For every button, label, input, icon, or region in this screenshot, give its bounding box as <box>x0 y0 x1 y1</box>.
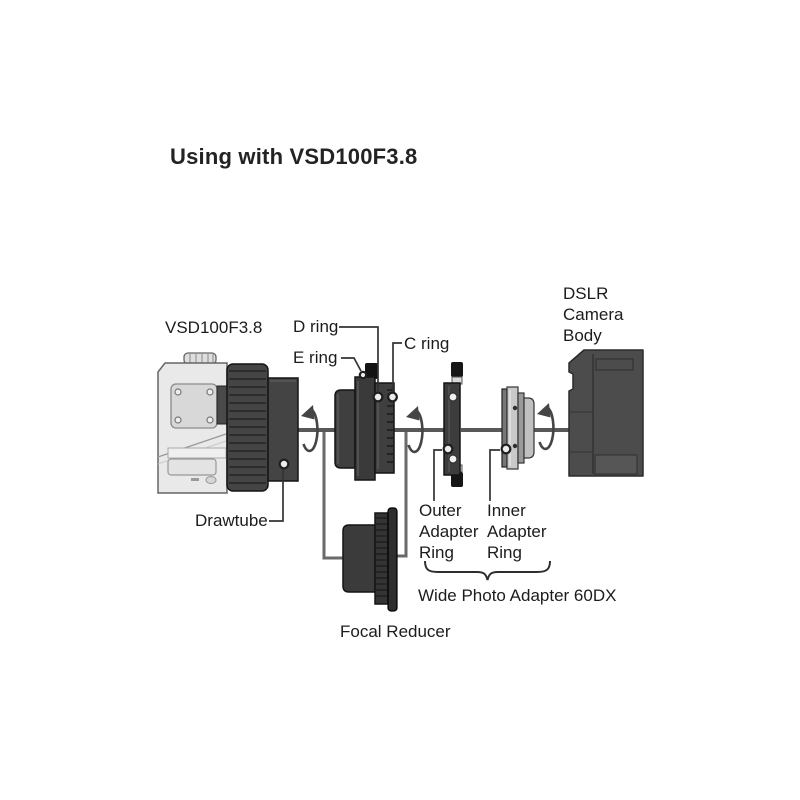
label-drawtube: Drawtube <box>195 511 268 530</box>
leader-e-ring <box>341 358 361 371</box>
telescope-handle-slot <box>168 459 216 475</box>
inner-ring-mid <box>518 393 524 463</box>
wide-photo-adapter-brace <box>425 561 550 580</box>
marker-inner-ring <box>502 445 511 454</box>
marker-c-ring <box>388 393 397 402</box>
label-c-ring: C ring <box>404 334 449 353</box>
inner-ring-dot-top <box>513 406 517 410</box>
outer-ring-screw-top <box>449 393 457 401</box>
dslr-camera-illustration <box>569 350 643 476</box>
label-outer-line2: Adapter <box>419 522 479 541</box>
leader-markers <box>280 372 511 469</box>
dec-ring-assembly <box>335 363 394 480</box>
label-inner-line1: Inner <box>487 501 526 520</box>
inner-adapter-ring-illustration <box>502 387 534 469</box>
label-wide-photo-adapter: Wide Photo Adapter 60DX <box>418 586 616 605</box>
focuser-ring-ribs <box>229 371 266 483</box>
rotate-arrow-icon <box>537 403 553 449</box>
page: Using with VSD100F3.8 <box>0 0 800 800</box>
assembly-diagram: VSD100F3.8 D ring E ring C ring Drawtube… <box>0 0 800 800</box>
telescope-oval-mark <box>206 477 216 484</box>
focal-reducer-body <box>343 525 375 592</box>
label-dslr-line3: Body <box>563 326 602 345</box>
marker-drawtube <box>280 460 289 469</box>
label-d-ring: D ring <box>293 317 338 336</box>
leader-inner-ring <box>490 450 500 501</box>
marker-e-ring <box>360 372 366 378</box>
label-inner-line3: Ring <box>487 543 522 562</box>
label-dslr-line2: Camera <box>563 305 624 324</box>
inner-ring-dot-bottom <box>513 444 517 448</box>
label-inner-line2: Adapter <box>487 522 547 541</box>
marker-d-ring <box>374 393 383 402</box>
outer-adapter-ring-illustration <box>444 362 463 487</box>
inner-ring-rim <box>502 389 507 467</box>
inner-ring-cylinder <box>524 398 534 458</box>
label-focal-reducer: Focal Reducer <box>340 622 451 641</box>
camera-base-block <box>595 455 637 474</box>
marker-outer-ring <box>444 445 453 454</box>
outer-ring-top-knob <box>451 362 463 377</box>
telescope-lower-band <box>168 448 226 458</box>
label-telescope: VSD100F3.8 <box>165 318 262 337</box>
label-e-ring: E ring <box>293 348 337 367</box>
inner-ring-flange <box>507 387 518 469</box>
telescope-illustration <box>158 353 298 493</box>
leader-outer-ring <box>434 450 442 501</box>
outer-ring-screw-bottom <box>449 455 457 463</box>
focal-reducer-illustration <box>343 508 397 611</box>
telescope-small-mark <box>191 478 199 481</box>
label-outer-line3: Ring <box>419 543 454 562</box>
label-dslr-line1: DSLR <box>563 284 608 303</box>
rotate-arrow-icon <box>301 405 317 451</box>
label-outer-line1: Outer <box>419 501 462 520</box>
focal-reducer-rear-plate <box>388 508 397 611</box>
